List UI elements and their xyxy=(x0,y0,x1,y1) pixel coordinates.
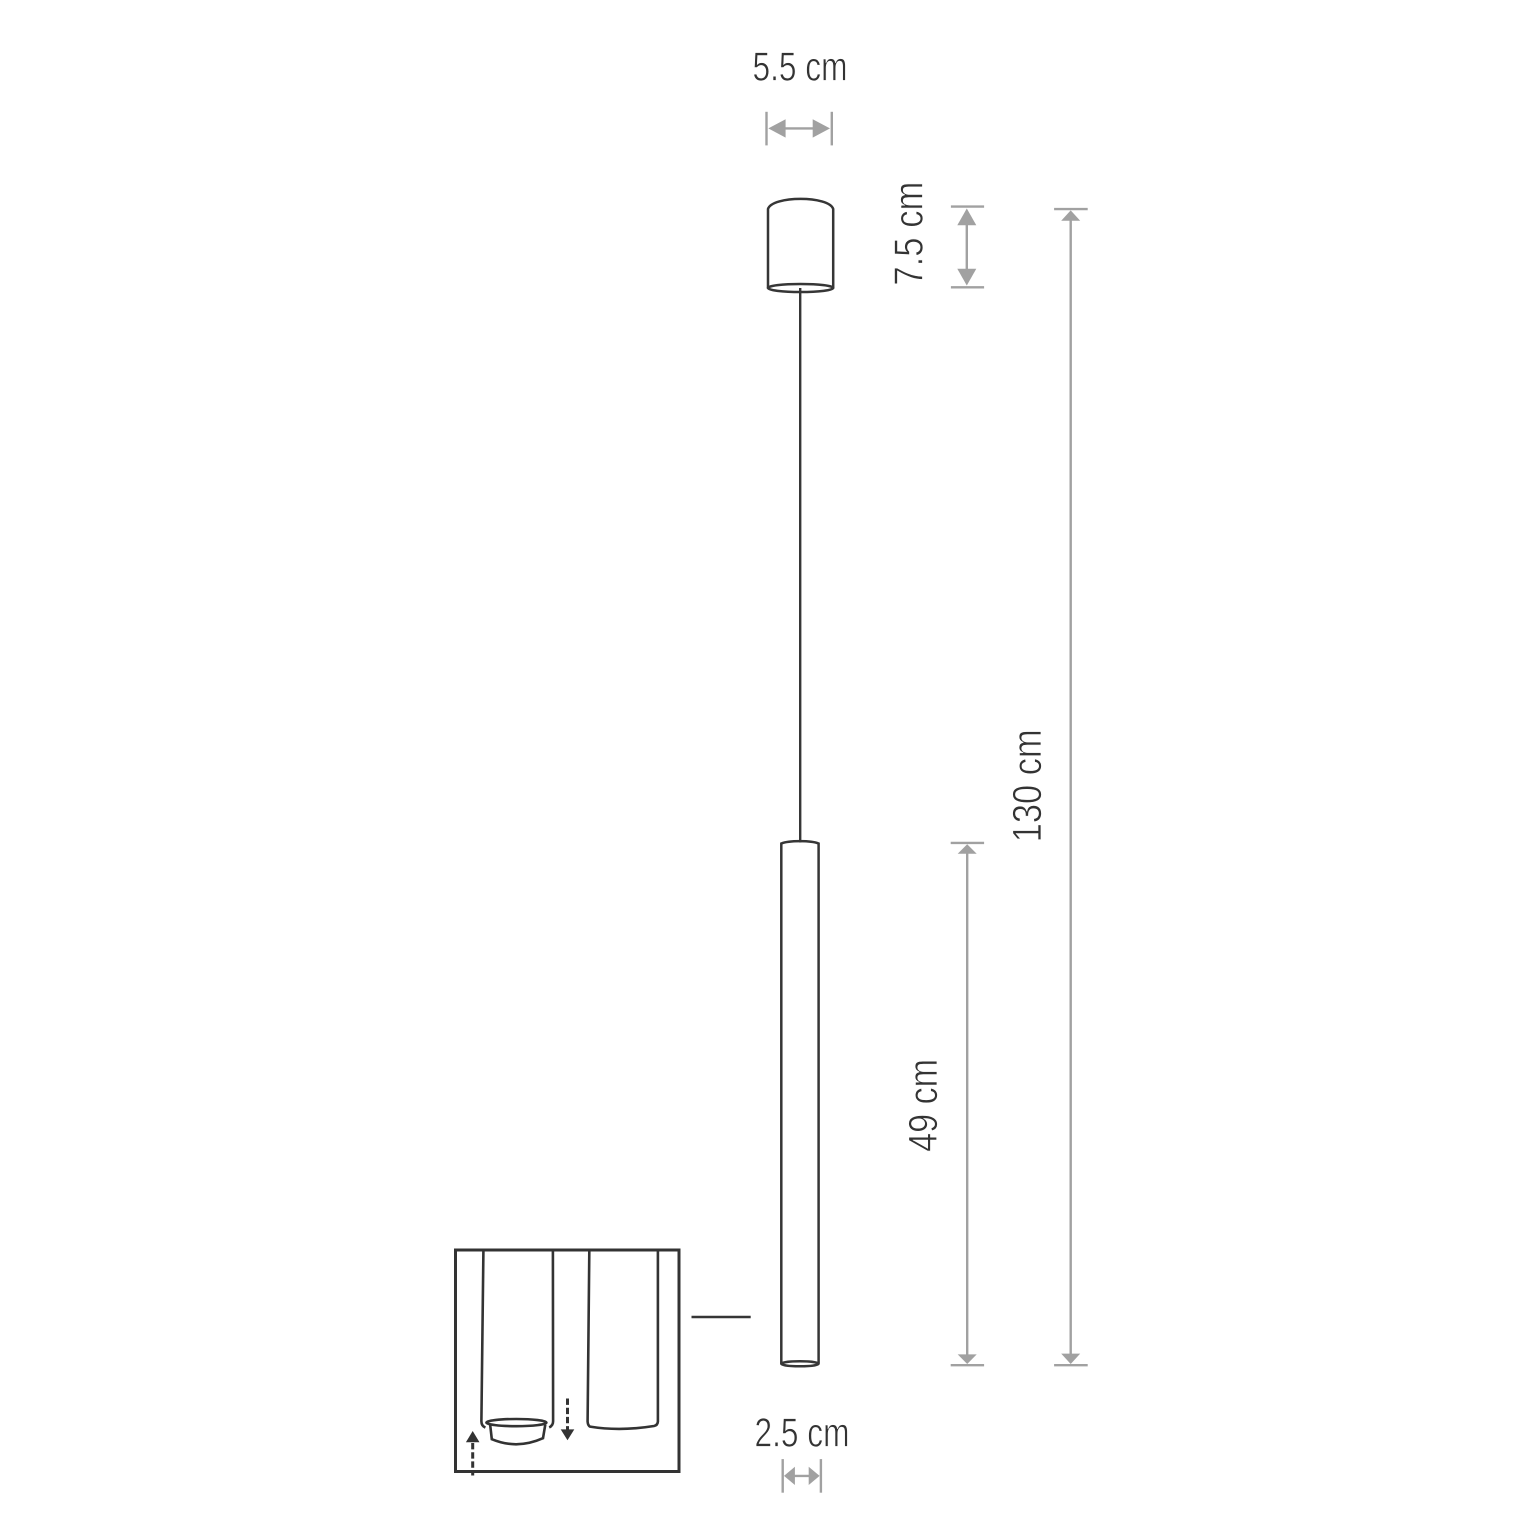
svg-text:5.5 cm: 5.5 cm xyxy=(753,44,848,90)
svg-text:49 cm: 49 cm xyxy=(900,1059,946,1152)
svg-text:7.5 cm: 7.5 cm xyxy=(886,182,932,286)
svg-text:130 cm: 130 cm xyxy=(1004,729,1050,842)
svg-text:2.5 cm: 2.5 cm xyxy=(755,1409,850,1455)
